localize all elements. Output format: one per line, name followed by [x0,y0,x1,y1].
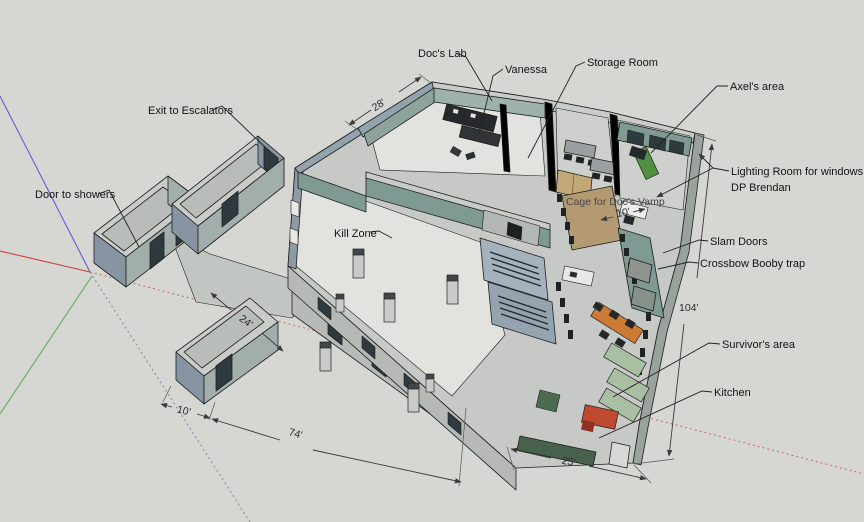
svg-text:Doc's Lab: Doc's Lab [418,48,467,60]
svg-text:Kitchen: Kitchen [714,387,751,399]
fridge [609,442,630,468]
svg-text:Kill Zone: Kill Zone [334,228,377,240]
svg-text:Crossbow Booby trap: Crossbow Booby trap [700,258,805,270]
west-window [291,200,299,217]
pillar [384,293,395,322]
west-window [290,228,298,245]
svg-text:Storage Room: Storage Room [587,57,658,69]
svg-text:Door to showers: Door to showers [35,189,116,201]
svg-text:Survivor's area: Survivor's area [722,339,796,351]
pillar [408,383,419,412]
svg-text:Exit to Escalators: Exit to Escalators [148,105,233,117]
pillar [353,249,364,278]
svg-text:Lighting Room for windows: Lighting Room for windows [731,166,864,178]
pillar [447,275,458,304]
svg-text:Cage for Doc's Vamp: Cage for Doc's Vamp [566,196,665,208]
dim-104: 104' [679,302,699,314]
svg-text:Slam Doors: Slam Doors [710,236,768,248]
svg-text:Axel's area: Axel's area [730,81,785,93]
pillar [320,342,331,371]
label-cage: Cage for Doc's Vamp [566,196,665,208]
svg-text:DP Brendan: DP Brendan [731,182,791,194]
svg-text:Vanessa: Vanessa [505,64,548,76]
dim-10-cage: 10' [615,206,631,220]
model-viewport[interactable]: 28' 10' 24' 10' 74' [0,0,864,522]
